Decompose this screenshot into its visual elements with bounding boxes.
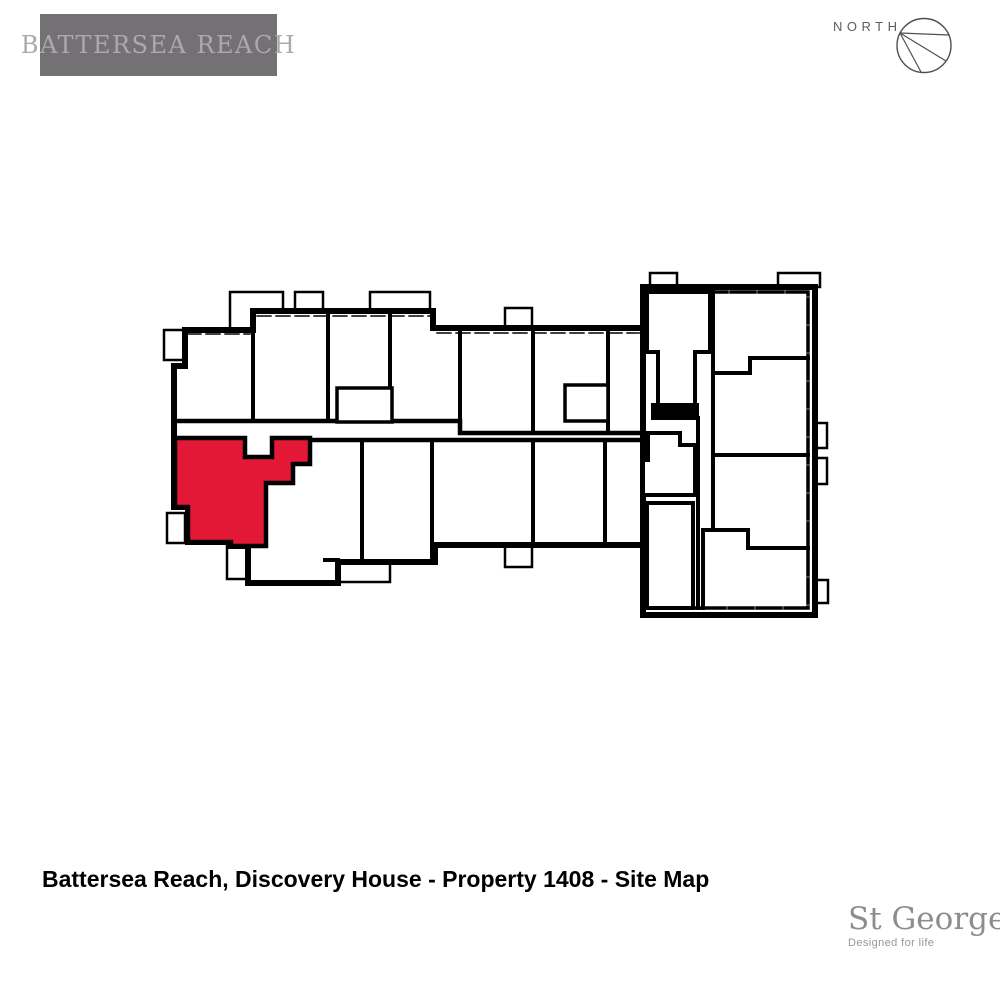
developer-name: St George: [848, 903, 978, 936]
interior-room: [337, 388, 392, 422]
balcony: [164, 330, 185, 360]
page: { "header": { "logo": { "text": "BATTERS…: [0, 0, 1000, 1000]
stair-core: [653, 405, 697, 418]
interior-room: [565, 385, 608, 421]
balcony: [505, 545, 532, 567]
balcony: [167, 513, 185, 543]
st-george-logo: St George Designed for life: [848, 903, 978, 949]
site-map-caption: Battersea Reach, Discovery House - Prope…: [42, 866, 709, 893]
floor-plan: [0, 0, 1000, 1000]
unit-outline: [647, 503, 693, 608]
developer-tagline: Designed for life: [848, 937, 978, 949]
